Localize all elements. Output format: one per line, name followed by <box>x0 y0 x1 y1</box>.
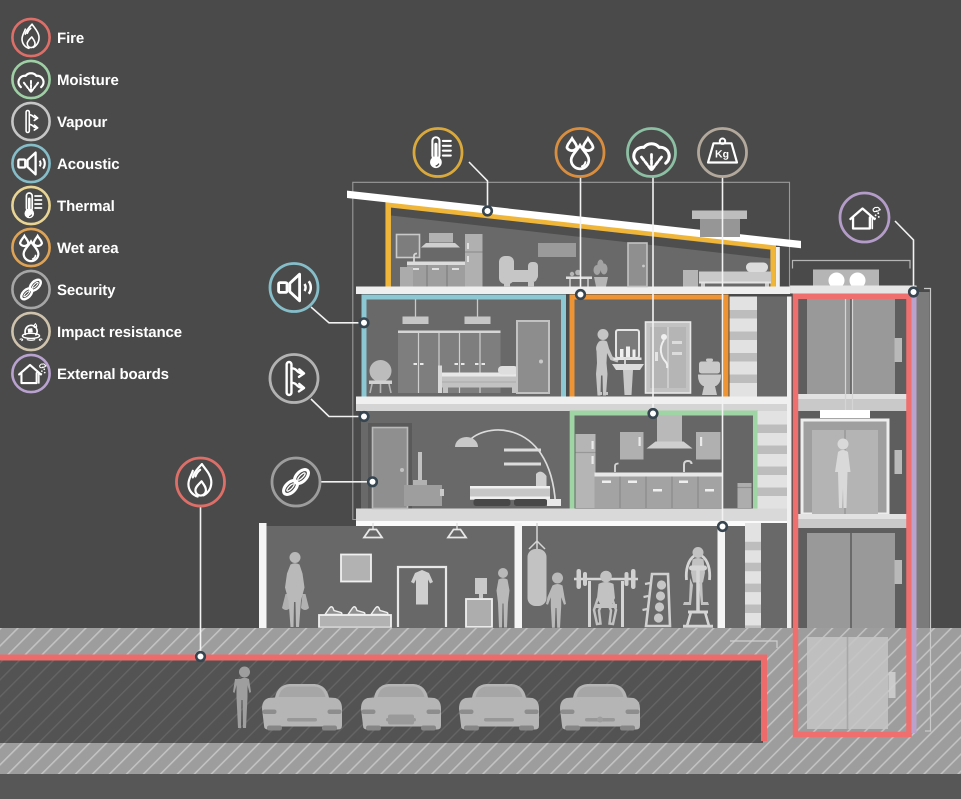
svg-text:Wet area: Wet area <box>57 240 119 257</box>
svg-text:Impact resistance: Impact resistance <box>57 324 182 341</box>
svg-text:Fire: Fire <box>57 30 84 47</box>
svg-text:Vapour: Vapour <box>57 114 108 131</box>
svg-text:Thermal: Thermal <box>57 198 115 215</box>
svg-text:Security: Security <box>57 282 116 299</box>
svg-text:Acoustic: Acoustic <box>57 156 120 173</box>
svg-text:External boards: External boards <box>57 366 169 383</box>
svg-text:Moisture: Moisture <box>57 72 119 89</box>
